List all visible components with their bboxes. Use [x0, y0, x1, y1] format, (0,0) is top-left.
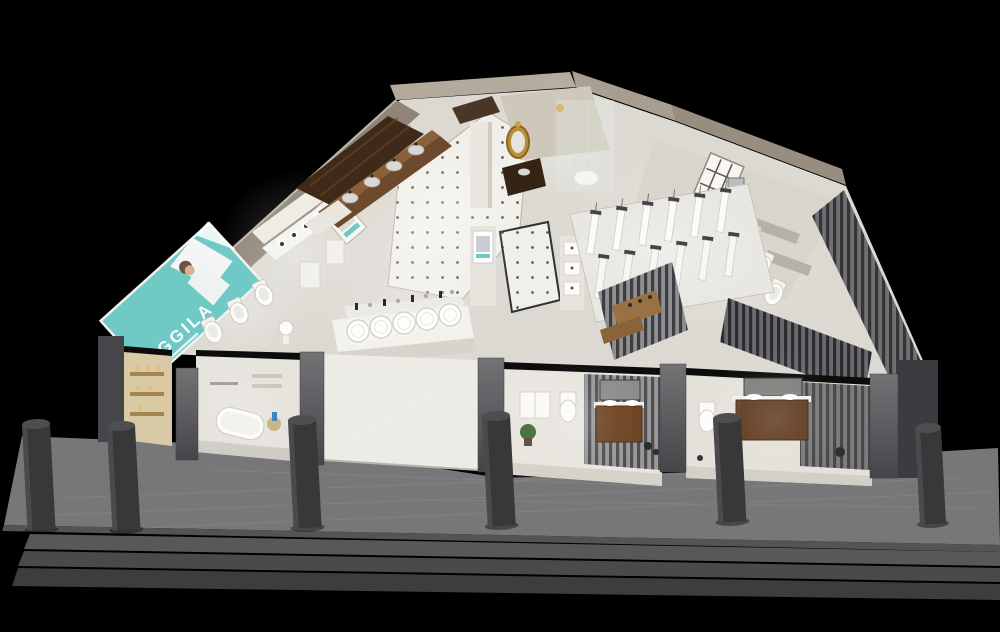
- showroom-render: AGGILA: [0, 0, 1000, 632]
- entrance-opening: [324, 354, 478, 470]
- display-pedestal: [326, 240, 344, 264]
- vanity-basin: [518, 169, 530, 176]
- mirror-glass: [511, 131, 525, 153]
- storefront-pillar: [660, 364, 686, 472]
- accessory: [653, 449, 659, 455]
- accessory: [644, 442, 652, 450]
- shower-tray: [574, 171, 598, 185]
- window-light-pool: [515, 355, 645, 485]
- display-pedestal: [300, 262, 320, 288]
- showroom-scene: AGGILA: [0, 0, 1000, 632]
- white-column-shade: [488, 122, 492, 208]
- chandelier: [556, 104, 564, 112]
- storefront-pillar: [176, 368, 198, 460]
- pillar-poster: [473, 231, 493, 263]
- storefront-pillar: [870, 374, 898, 478]
- window-light-pool: [195, 353, 305, 463]
- mirror-crest: [515, 121, 521, 127]
